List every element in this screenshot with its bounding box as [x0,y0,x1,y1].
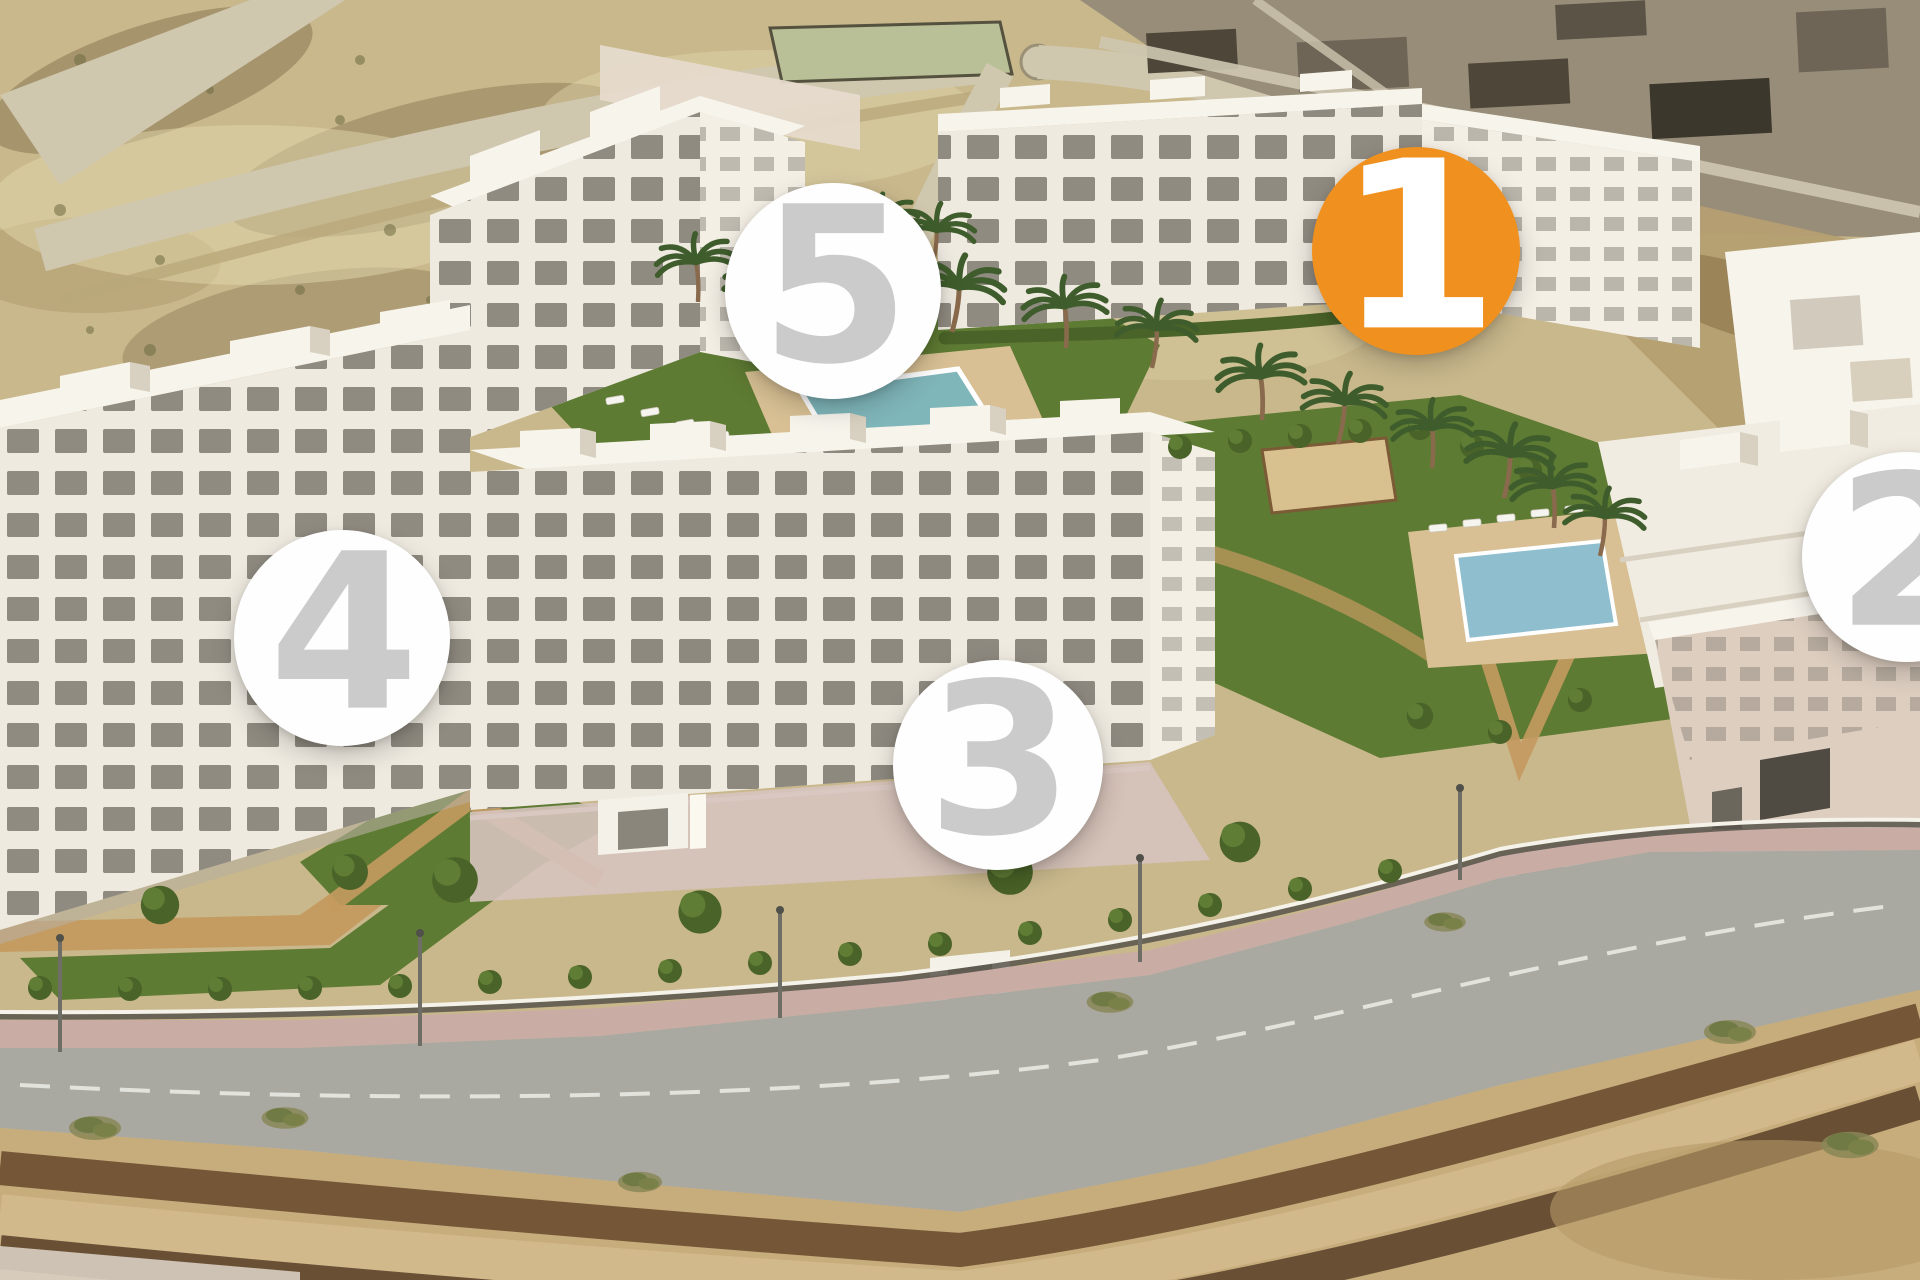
block-marker-2-number: 2 [1836,448,1920,658]
block-marker-3-number: 3 [927,656,1069,866]
block-marker-4[interactable]: 4 [234,530,450,746]
block-marker-4-number: 4 [269,526,415,742]
block-marker-5-number: 5 [760,179,906,395]
aerial-development-render: 1 2 3 4 5 [0,0,1920,1280]
phase-markers: 1 2 3 4 5 [0,0,1920,1280]
block-marker-3[interactable]: 3 [893,660,1103,870]
block-marker-1-number: 1 [1337,130,1495,363]
block-marker-1[interactable]: 1 [1312,147,1520,355]
block-marker-5[interactable]: 5 [725,183,941,399]
block-marker-2[interactable]: 2 [1802,452,1920,662]
